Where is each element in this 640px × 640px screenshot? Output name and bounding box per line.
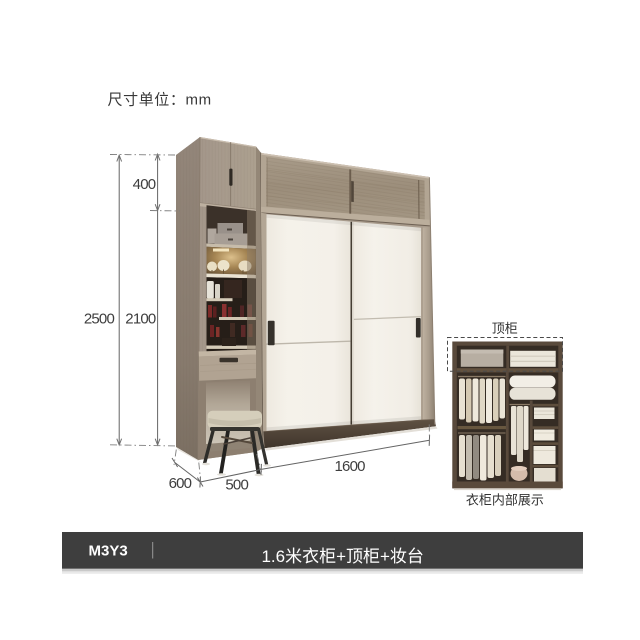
svg-text:2500: 2500 bbox=[84, 311, 115, 328]
svg-text:衣柜内部展示: 衣柜内部展示 bbox=[466, 493, 544, 508]
svg-text:2100: 2100 bbox=[125, 311, 156, 328]
svg-text:M3Y3: M3Y3 bbox=[89, 543, 128, 560]
svg-text:1.6米衣柜+顶柜+妆台: 1.6米衣柜+顶柜+妆台 bbox=[261, 547, 424, 566]
svg-text:600: 600 bbox=[169, 475, 192, 492]
svg-text:500: 500 bbox=[225, 477, 248, 494]
svg-text:1600: 1600 bbox=[335, 458, 366, 475]
svg-text:顶柜: 顶柜 bbox=[492, 321, 518, 336]
svg-text:尺寸单位：mm: 尺寸单位：mm bbox=[108, 92, 212, 109]
svg-text:400: 400 bbox=[133, 176, 156, 193]
